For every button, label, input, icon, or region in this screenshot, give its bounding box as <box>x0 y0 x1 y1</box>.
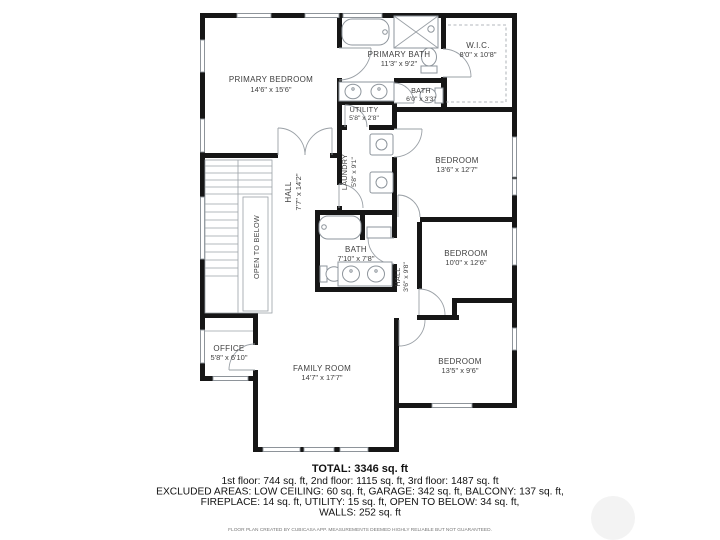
wall <box>394 78 446 83</box>
room-dims-bath-middle: 7'10" x 7'8" <box>338 254 375 263</box>
window <box>343 14 382 18</box>
excluded-areas-text: WALLS: 252 sq. ft <box>319 508 401 519</box>
total-area-text: TOTAL: 3346 sq. ft <box>312 463 409 475</box>
watermark <box>591 496 635 540</box>
window <box>201 197 205 259</box>
floor-areas-text: 1st floor: 744 sq. ft, 2nd floor: 1115 s… <box>221 476 498 487</box>
wall <box>200 313 258 318</box>
wall <box>253 376 258 452</box>
window <box>201 119 205 152</box>
closet-door <box>394 129 422 157</box>
wall <box>392 107 517 112</box>
door <box>398 195 420 217</box>
disclaimer-text: FLOOR PLAN CREATED BY CUBICASA APP. MEAS… <box>228 527 492 533</box>
door <box>399 320 425 346</box>
room-dims-utility: 5'8" x 2'8" <box>349 115 379 122</box>
door <box>419 289 445 315</box>
room-label-hall-small: HALL <box>393 267 402 286</box>
room-dims-bedroom-se: 13'5" x 9'6" <box>442 366 479 375</box>
window <box>340 448 368 452</box>
room-label-primary-bedroom: PRIMARY BEDROOM <box>229 75 313 84</box>
room-label-hall-group: HALL 7'7" x 14'2" <box>284 173 303 210</box>
excluded-areas-text: EXCLUDED AREAS: LOW CEILING: 60 sq. ft, … <box>156 487 564 498</box>
shower-icon <box>394 16 438 48</box>
window <box>263 448 300 452</box>
wall <box>420 217 517 222</box>
sink-icon <box>339 82 394 101</box>
window <box>305 14 339 18</box>
floor-plan-canvas: PRIMARY BEDROOM 14'6" x 15'6" PRIMARY BA… <box>0 0 720 540</box>
room-label-open-to-below: OPEN TO BELOW <box>252 215 261 279</box>
bathtub-icon <box>319 216 361 239</box>
room-label-office: OFFICE <box>213 344 244 353</box>
wall <box>200 153 278 158</box>
room-label-family-room: FAMILY ROOM <box>293 364 351 373</box>
room-dims-hall-small: 3'6" x 9'8" <box>403 262 410 292</box>
room-label-bedroom-ne: BEDROOM <box>435 156 478 165</box>
wall <box>392 112 397 129</box>
room-dims-wic: 8'0" x 10'8" <box>460 50 497 59</box>
wall <box>253 313 258 345</box>
door <box>339 48 371 80</box>
wall <box>417 222 422 289</box>
room-dims-family-room: 14'7" x 17'7" <box>301 373 342 382</box>
wall <box>392 210 397 238</box>
room-dims-office: 5'8" x 6'10" <box>211 353 248 362</box>
window <box>237 14 271 18</box>
window <box>513 137 517 177</box>
shelf <box>367 227 391 238</box>
room-dims-bedroom-ne: 13'6" x 12'7" <box>436 165 477 174</box>
window <box>513 228 517 265</box>
closet-rail <box>446 25 506 102</box>
room-label-hall: HALL <box>284 181 293 202</box>
excluded-areas-text: FIREPLACE: 14 sq. ft, UTILITY: 15 sq. ft… <box>201 497 520 508</box>
room-label-laundry: LAUNDRY <box>340 154 349 190</box>
room-dims-bath-upper: 6'0" x 3'3" <box>406 96 436 103</box>
floor-plan-page: PRIMARY BEDROOM 14'6" x 15'6" PRIMARY BA… <box>0 0 720 540</box>
room-dims-primary-bath: 11'3" x 9'2" <box>381 59 418 68</box>
room-dims-hall: 7'7" x 14'2" <box>294 173 303 210</box>
room-label-utility: UTILITY <box>350 105 379 114</box>
room-label-laundry-group: LAUNDRY 5'8" x 9'1" <box>340 154 358 190</box>
footer-summary: TOTAL: 3346 sq. ft 1st floor: 744 sq. ft… <box>156 463 564 533</box>
room-label-open-to-below-group: OPEN TO BELOW <box>252 215 261 279</box>
window <box>201 330 205 363</box>
room-dims-primary-bedroom: 14'6" x 15'6" <box>250 85 291 94</box>
room-label-bedroom-se: BEDROOM <box>438 357 481 366</box>
window <box>513 328 517 350</box>
wall <box>315 210 397 215</box>
wall <box>253 370 258 381</box>
wall <box>369 125 394 130</box>
dryer-icon <box>370 172 393 193</box>
wall <box>441 13 446 49</box>
washer-icon <box>370 134 393 155</box>
stairs-icon <box>205 160 272 313</box>
room-label-bath-upper: BATH <box>411 86 431 95</box>
wall <box>337 13 342 48</box>
room-label-bath-middle: BATH <box>345 245 367 254</box>
room-label-primary-bath: PRIMARY BATH <box>368 50 431 59</box>
room-label-wic: W.I.C. <box>466 41 490 50</box>
room-dims-bedroom-e: 10'0" x 12'6" <box>445 258 486 267</box>
room-dims-laundry: 5'8" x 9'1" <box>351 157 358 187</box>
window <box>213 377 248 381</box>
wall <box>452 298 517 303</box>
window <box>432 404 472 408</box>
wall <box>394 318 399 452</box>
wall <box>337 125 347 130</box>
double-door <box>278 128 332 155</box>
window <box>513 179 517 195</box>
sink-icon <box>338 262 392 286</box>
wall <box>315 287 397 292</box>
room-label-bedroom-e: BEDROOM <box>444 249 487 258</box>
window <box>201 40 205 72</box>
bathtub-icon <box>342 19 389 45</box>
window <box>304 448 334 452</box>
